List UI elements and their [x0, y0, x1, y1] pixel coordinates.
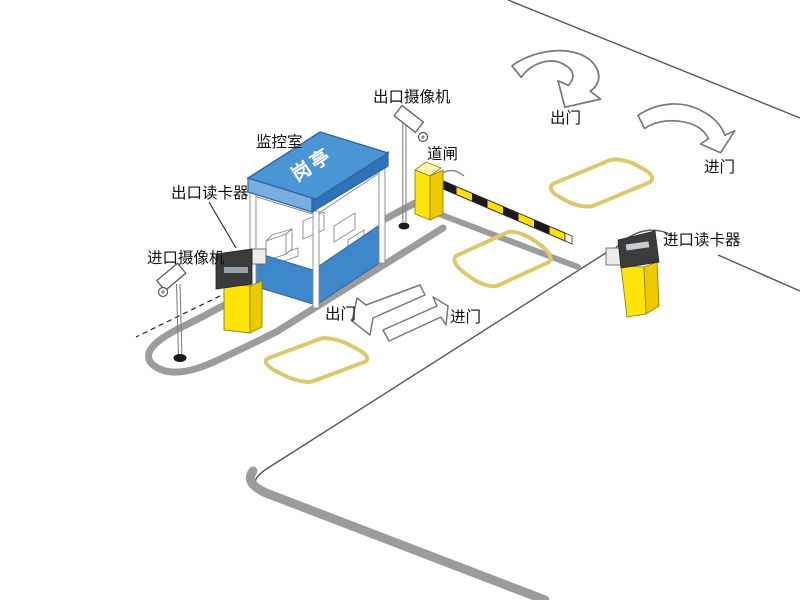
parking-area-curb: [250, 471, 545, 600]
exit-camera-lens-dot: [421, 135, 424, 138]
label-entrance-camera: 进口摄像机: [147, 249, 225, 267]
exit-reader-post-front: [224, 284, 250, 333]
barrier-box-front: [415, 170, 430, 220]
arm-stripe: [472, 193, 488, 208]
entrance-reader-post-front: [621, 266, 646, 317]
label-enter-mid: 进门: [450, 308, 481, 326]
arm-stripe: [503, 207, 519, 222]
label-barrier-gate: 道闸: [427, 145, 458, 163]
exit-reader-display: [252, 249, 266, 264]
monitor-side: [286, 229, 292, 254]
exit-camera-pole-base: [399, 223, 410, 230]
exit-reader-leader-line: [209, 202, 236, 248]
enter-top-arrow: [638, 104, 735, 153]
label-exit-mid: 出门: [325, 305, 356, 323]
label-exit-reader: 出口读卡器: [171, 184, 249, 202]
loop-entry-far: [543, 156, 660, 210]
entrance-reader-body: [618, 231, 659, 268]
entrance-reader-unit: [606, 231, 659, 317]
booth-post-south: [313, 211, 319, 308]
booth-post-east: [379, 166, 385, 263]
parking-system-diagram: 岗亭: [0, 0, 800, 600]
entrance-reader-post-side: [644, 262, 659, 314]
entrance-camera-body: [157, 263, 186, 290]
label-monitor-room: 监控室: [256, 133, 303, 151]
loop-exit-near: [258, 335, 375, 385]
exit-top-arrow: [512, 51, 601, 108]
guard-booth: 岗亭: [248, 132, 388, 308]
exit-reader-post-side: [250, 281, 262, 333]
label-exit-camera: 出口摄像机: [373, 88, 451, 106]
entrance-camera-lens-dot: [161, 290, 164, 293]
label-enter-top: 进门: [704, 158, 735, 176]
exit-reader-slot: [224, 267, 248, 273]
exit-camera-body: [394, 105, 423, 132]
diagram-canvas: 岗亭: [0, 0, 800, 600]
label-exit-top: 出门: [550, 109, 581, 127]
entrance-camera-pole-base: [174, 354, 187, 362]
arm-stripe: [534, 220, 550, 235]
arm-tip-cap: [565, 233, 572, 244]
entry-lane-edge: [718, 255, 800, 291]
barrier-box-side: [430, 170, 443, 220]
label-entrance-reader: 进口读卡器: [663, 231, 741, 249]
